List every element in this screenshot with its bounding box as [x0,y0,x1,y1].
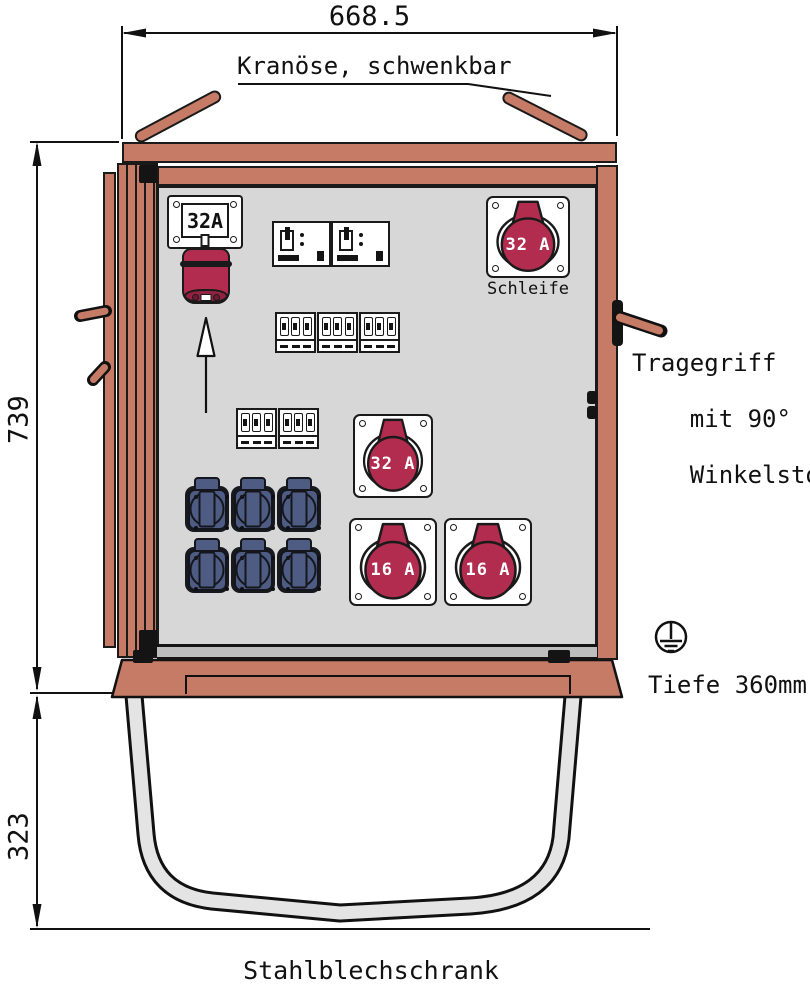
breaker-toggle [264,413,273,432]
carry-handle-label-line1: Tragegriff [632,349,777,377]
terminal-dash [303,345,311,348]
breaker-toggle [294,413,303,432]
terminal-dash [322,345,330,348]
terminal-dash [364,345,372,348]
breaker-toggle [280,317,289,336]
stand-bracket-left [133,650,153,663]
inlet-pin-face [184,289,228,303]
rcd-test-button [376,251,383,261]
mcb-terminals [277,339,314,351]
door-frame-strips [117,163,158,658]
breaker-toggle [387,317,396,336]
carry-handle-label-line3: Winkelstopp [690,461,810,489]
rcd-switch-lever [339,230,353,251]
schuko-socket [185,486,229,532]
socket-face [280,550,319,591]
mcb-toggles [361,314,398,339]
rcd-indicator-dots [359,233,363,237]
inlet-pin [213,294,220,301]
inlet-pin [201,294,212,301]
mcb-terminals [361,339,398,351]
socket-rating-label: 16 A [446,560,530,580]
inlet-keyway [201,234,210,247]
terminal-dash [376,345,384,348]
cee-inlet-plug-body [182,248,230,304]
technical-drawing-canvas: 32A [0,0,810,1000]
terminal-dash [292,345,300,348]
screw-icon [173,236,180,243]
rcd-terminal [278,255,299,261]
dimension-height-label: 739 [0,375,38,465]
terminal-dash [283,441,291,444]
socket-face [280,489,319,530]
cee-socket-32a-loop: 32 A [486,196,570,278]
schuko-socket [231,547,275,593]
terminal-dash [241,441,249,444]
socket-cover [291,552,308,589]
terminal-dash [253,441,261,444]
earth-ground-icon [656,622,686,652]
mcb-row-1 [275,312,400,353]
socket-cover [291,491,308,528]
door-hinge-top [139,165,158,183]
schuko-socket [231,486,275,532]
terminal-dash [280,345,288,348]
terminal-dash [306,441,314,444]
screw-icon [173,201,180,208]
carry-handle-label-line2: mit 90° [690,405,791,433]
terminal-dash [295,441,303,444]
cee-socket-32a: 32 A [353,414,433,498]
rcd-breaker [272,221,331,267]
mcb-toggles [238,410,275,435]
screw-icon [230,201,237,208]
terminal-dash [334,345,342,348]
cee-socket-16a-right: 16 A [444,518,532,606]
cabinet-bottom-band [157,644,597,660]
dimension-width-label: 668.5 [122,1,617,32]
inlet-band [180,261,232,267]
socket-cover [245,491,262,528]
crane-eye-label: Kranöse, schwenkbar [237,52,512,80]
breaker-toggle [333,317,342,336]
mcb-toggles [280,410,317,435]
socket-rating-label: 32 A [488,235,568,255]
cabinet-top-rail [122,142,617,163]
rcd-test-button [317,251,324,261]
rcd-switch-lever [280,230,294,251]
mcb-breaker-group [236,408,277,449]
mcb-breaker-group [359,312,400,353]
breaker-toggle [241,413,250,432]
socket-face [188,489,227,530]
bottom-rail [112,660,622,697]
rcd-terminal [337,255,358,261]
socket-cover [199,552,216,589]
breaker-toggle [303,317,312,336]
terminal-dash [387,345,395,348]
inlet-rating-label: 32A [181,203,229,238]
breaker-toggle [322,317,331,336]
breaker-toggle [283,413,292,432]
socket-face [188,550,227,591]
inlet-pin [192,294,199,301]
breaker-toggle [345,317,354,336]
mcb-breaker-group [278,408,319,449]
tubular-stand [131,661,576,913]
dimension-stand-height-label: 323 [0,792,38,882]
mcb-breaker-group [275,312,316,353]
breaker-toggle [375,317,384,336]
terminal-dash [345,345,353,348]
socket-rating-label: 32 A [355,454,431,474]
socket-cover [245,552,262,589]
cabinet-right-rail [596,165,618,660]
cee-inlet-plate: 32A [167,195,243,249]
cabinet-inner-top-bar [157,166,618,186]
socket-rating-label: 16 A [351,560,435,580]
breaker-toggle [252,413,261,432]
cee-socket-16a-left: 16 A [349,518,437,606]
depth-note: Tiefe 360mm [648,671,807,699]
breaker-toggle [364,317,373,336]
screw-icon [230,236,237,243]
terminal-dash [264,441,272,444]
rcd-row [272,221,390,267]
socket-face [234,489,273,530]
breaker-toggle [306,413,315,432]
mcb-terminals [238,435,275,447]
mcb-toggles [319,314,356,339]
breaker-toggle [291,317,300,336]
mcb-terminals [319,339,356,351]
mcb-row-2 [236,408,319,449]
cabinet-type-label: Stahlblechschrank [161,956,581,985]
carry-handle-label: Tragegriff mit 90° Winkelstopp [632,349,810,489]
socket-cover [199,491,216,528]
mcb-terminals [280,435,317,447]
loop-socket-caption: Schleife [480,279,576,299]
mcb-toggles [277,314,314,339]
stand-bracket-right [548,650,570,663]
socket-face [234,550,273,591]
schuko-socket [277,547,321,593]
rcd-breaker [331,221,390,267]
schuko-socket [185,547,229,593]
door-edge-profile [103,172,116,648]
mcb-breaker-group [317,312,358,353]
rcd-indicator-dots [300,233,304,237]
schuko-socket [277,486,321,532]
